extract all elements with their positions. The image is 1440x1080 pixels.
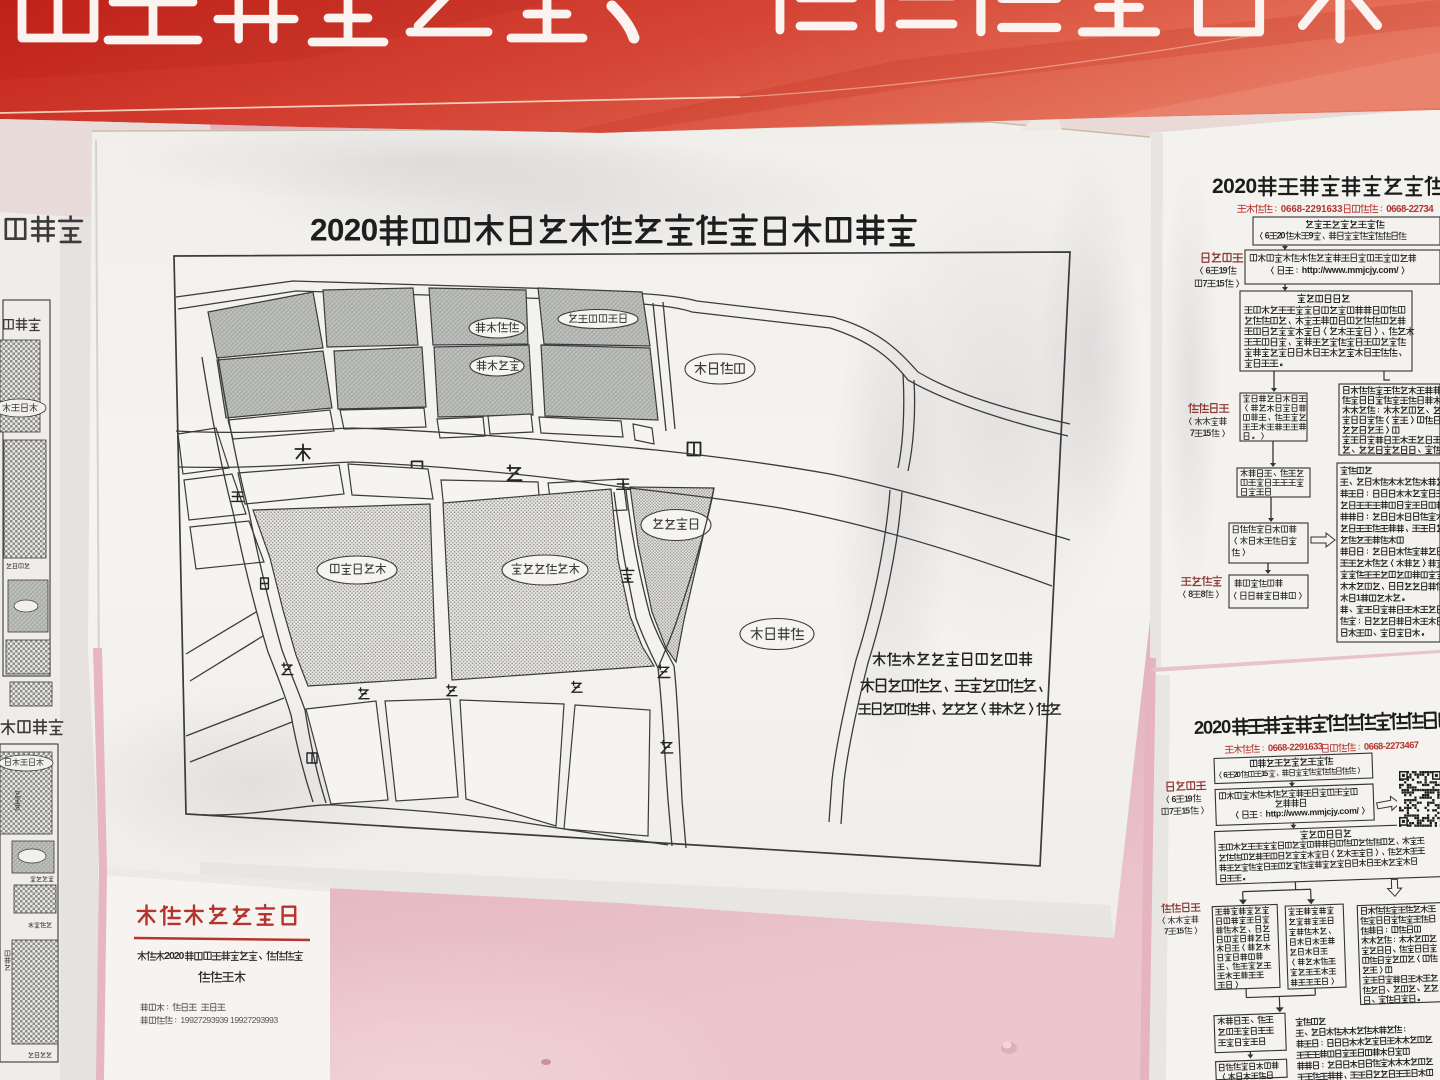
svg-text:6: 6: [1171, 794, 1176, 804]
svg-text:19927293939 19927293993: 19927293939 19927293993: [180, 1015, 278, 1025]
svg-text:9: 9: [1309, 231, 1314, 241]
svg-text:19: 19: [1219, 265, 1228, 275]
svg-text:8: 8: [1188, 589, 1193, 599]
svg-text:2020: 2020: [164, 951, 184, 962]
svg-text:0668-2273467: 0668-2273467: [1364, 739, 1420, 752]
svg-text:6: 6: [1206, 265, 1211, 275]
svg-text:8: 8: [1201, 589, 1206, 599]
svg-text:15: 15: [1176, 925, 1185, 935]
svg-text:15: 15: [1181, 805, 1190, 815]
svg-text:2020: 2020: [1194, 716, 1232, 738]
svg-text:1: 1: [1356, 593, 1361, 603]
svg-text:19: 19: [1184, 793, 1193, 803]
svg-text:0668-2291633: 0668-2291633: [1268, 740, 1324, 753]
svg-text:0668-2291633: 0668-2291633: [1281, 204, 1343, 215]
svg-text:20: 20: [1233, 770, 1241, 779]
svg-text:15: 15: [1203, 428, 1212, 438]
svg-text:20: 20: [1277, 231, 1286, 241]
svg-text:15: 15: [1261, 769, 1269, 778]
svg-text:7: 7: [1190, 428, 1195, 438]
svg-text:0668-22734: 0668-22734: [1386, 204, 1434, 215]
svg-text:7: 7: [1169, 806, 1174, 816]
svg-text:7: 7: [1203, 278, 1208, 288]
svg-text:2020: 2020: [310, 211, 378, 247]
svg-text:7: 7: [1164, 926, 1169, 936]
svg-text:6: 6: [1265, 231, 1270, 241]
svg-text:15: 15: [1216, 278, 1225, 288]
svg-text:http://www.mmjcjy.com/: http://www.mmjcjy.com/: [1302, 265, 1399, 275]
svg-text:2020: 2020: [1212, 175, 1257, 198]
